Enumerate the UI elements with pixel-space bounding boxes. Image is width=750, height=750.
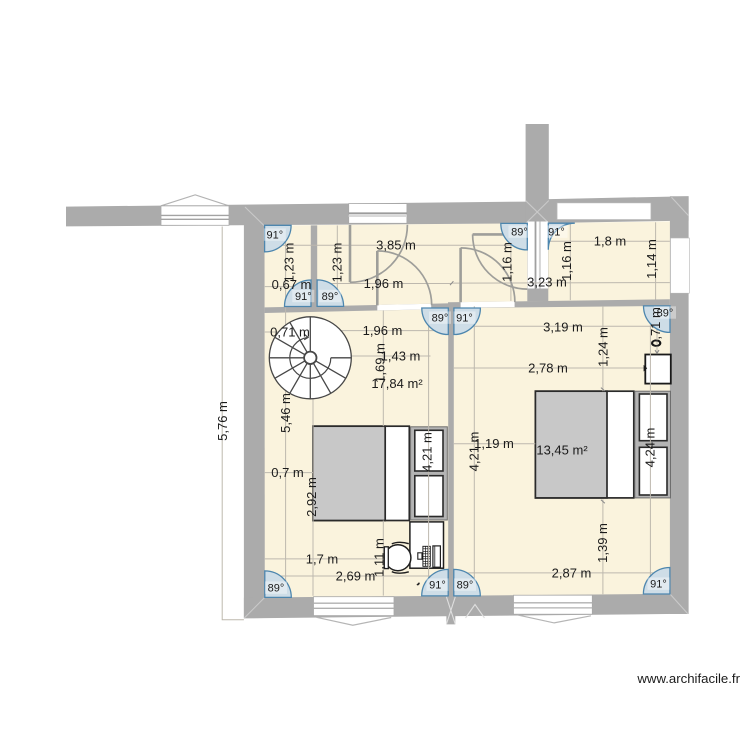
svg-text:4,21 m: 4,21 m xyxy=(420,432,435,472)
svg-text:13,45 m²: 13,45 m² xyxy=(536,443,588,458)
svg-text:1,96 m: 1,96 m xyxy=(364,276,404,291)
svg-text:89°: 89° xyxy=(457,580,474,592)
svg-text:0,71 m: 0,71 m xyxy=(648,307,663,347)
svg-text:1,23 m: 1,23 m xyxy=(282,243,297,283)
svg-text:1,24 m: 1,24 m xyxy=(596,327,611,367)
svg-text:4,21 m: 4,21 m xyxy=(467,432,482,472)
svg-text:1,39 m: 1,39 m xyxy=(595,523,610,563)
svg-text:89°: 89° xyxy=(511,227,528,239)
svg-text:3,19 m: 3,19 m xyxy=(543,320,583,335)
svg-text:1,14 m: 1,14 m xyxy=(644,239,659,279)
svg-text:2,87 m: 2,87 m xyxy=(552,565,592,580)
svg-text:1,11 m: 1,11 m xyxy=(372,538,387,577)
svg-text:91°: 91° xyxy=(650,579,667,591)
svg-text:1,16 m: 1,16 m xyxy=(559,241,574,281)
svg-text:1,7 m: 1,7 m xyxy=(306,551,339,566)
svg-text:www.archifacile.fr: www.archifacile.fr xyxy=(636,671,740,686)
svg-text:91°: 91° xyxy=(548,227,565,239)
svg-text:0,7 m: 0,7 m xyxy=(271,465,304,480)
svg-text:0,71 m: 0,71 m xyxy=(270,325,310,340)
svg-text:1,96 m: 1,96 m xyxy=(363,323,403,338)
svg-text:89°: 89° xyxy=(268,583,285,595)
svg-text:2,78 m: 2,78 m xyxy=(528,361,568,376)
svg-text:4,24 m: 4,24 m xyxy=(643,428,658,468)
svg-text:89°: 89° xyxy=(432,313,449,325)
svg-text:89°: 89° xyxy=(322,291,339,303)
svg-text:91°: 91° xyxy=(295,291,312,303)
svg-text:91°: 91° xyxy=(266,230,283,242)
svg-text:91°: 91° xyxy=(429,580,446,592)
svg-text:1,16 m: 1,16 m xyxy=(500,242,515,282)
svg-text:2,69 m: 2,69 m xyxy=(336,569,376,584)
svg-text:5,76 m: 5,76 m xyxy=(215,401,230,441)
svg-text:5,46 m: 5,46 m xyxy=(278,393,293,433)
svg-text:1,69 m: 1,69 m xyxy=(372,343,387,383)
svg-text:1,8 m: 1,8 m xyxy=(594,234,627,249)
svg-text:2,92 m: 2,92 m xyxy=(304,477,319,517)
svg-text:3,85 m: 3,85 m xyxy=(376,238,416,253)
svg-text:1,23 m: 1,23 m xyxy=(330,243,345,283)
svg-text:91°: 91° xyxy=(456,313,473,325)
